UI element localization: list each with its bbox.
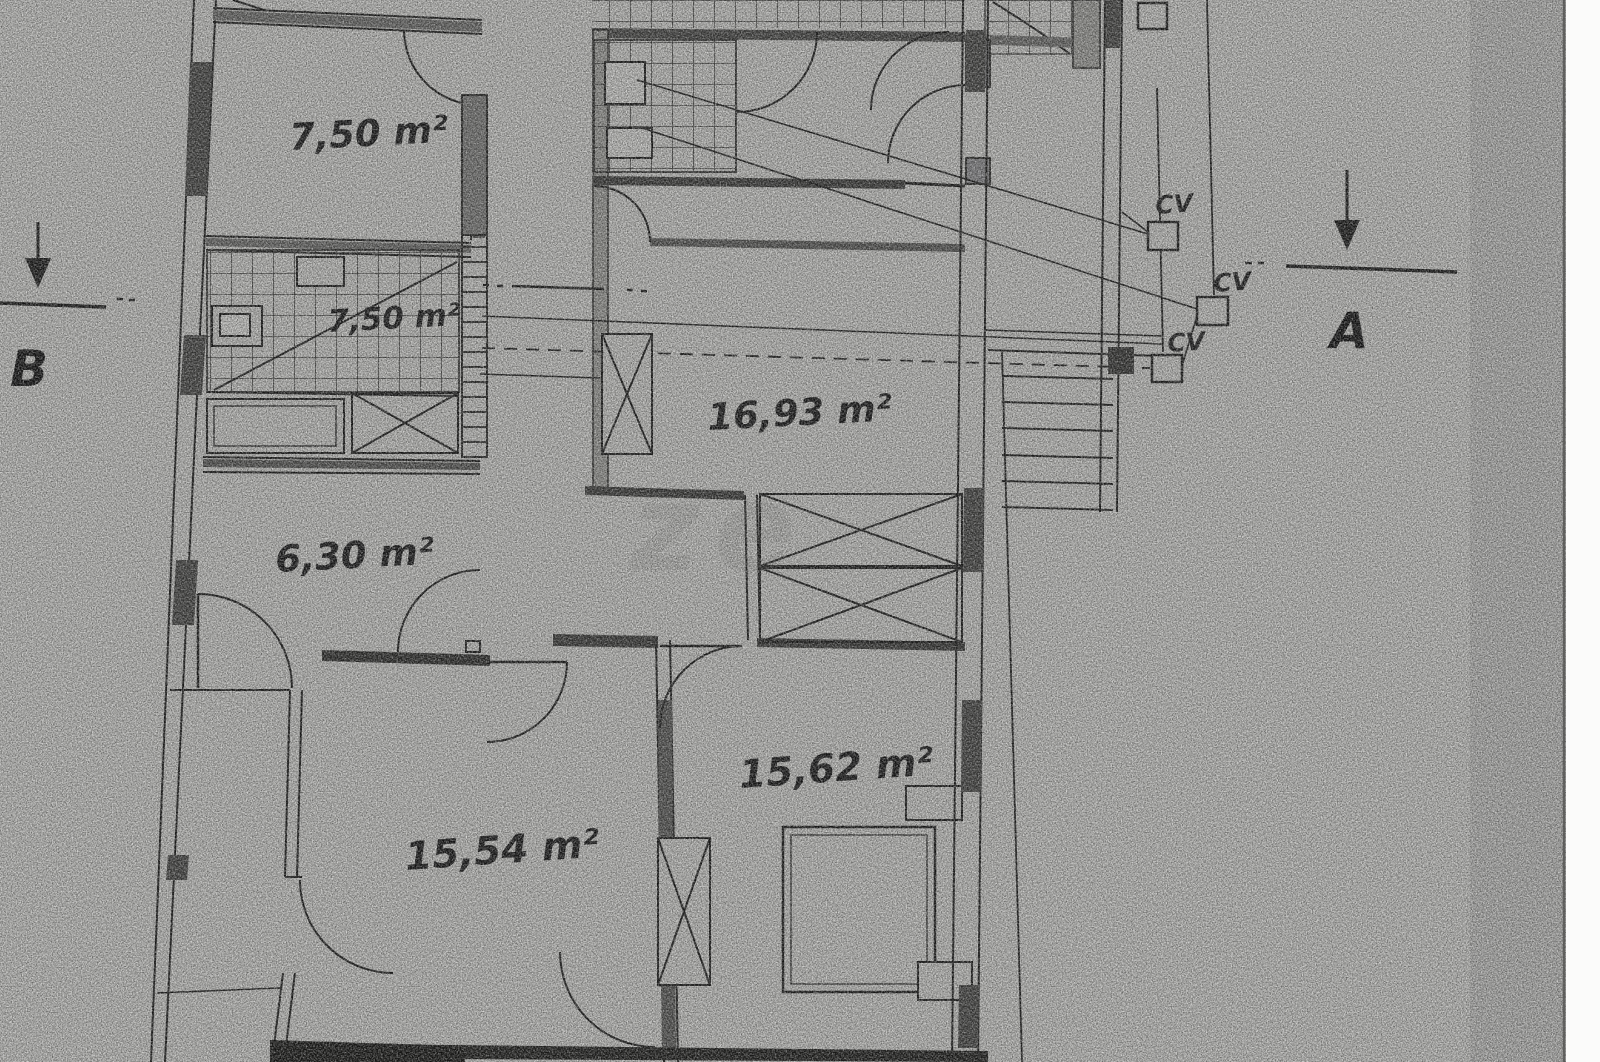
scanned-floorplan-page: ze 7,50 m² 7,50 m² 16,93 m² 6,30 m² 15,5… (0, 0, 1600, 1062)
floor-plan-svg: ze 7,50 m² 7,50 m² 16,93 m² 6,30 m² 15,5… (0, 0, 1600, 1062)
noise-light-overlay (0, 0, 1600, 1062)
paper-white-margin (1566, 0, 1600, 1062)
